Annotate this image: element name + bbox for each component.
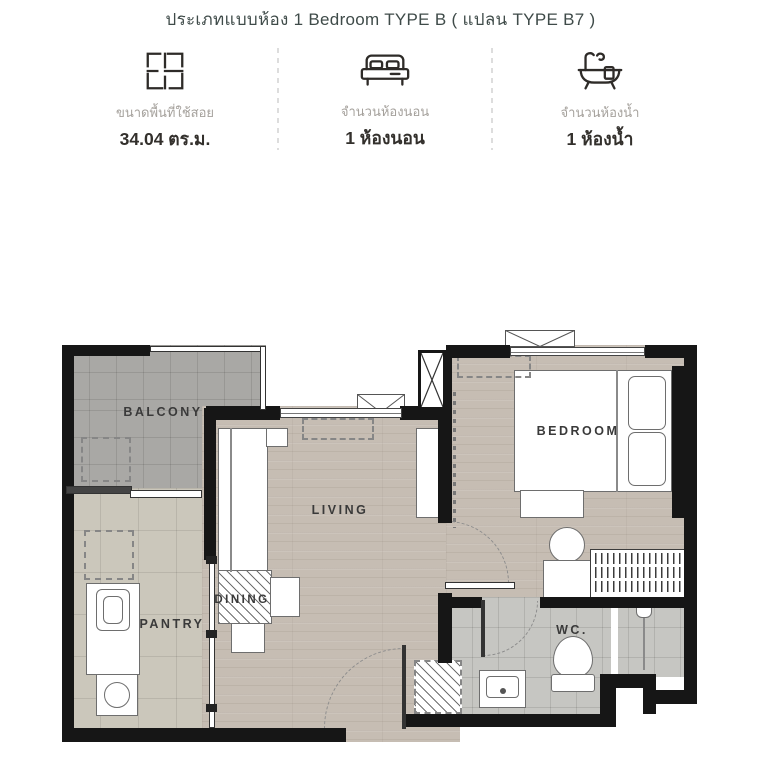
wall-segment [204, 408, 216, 560]
balcony-sliding-door [66, 486, 132, 494]
sofa [218, 428, 268, 572]
wc-door-leaf [481, 600, 485, 657]
wc-door-swing [483, 601, 538, 656]
room-label-wc: WC. [556, 623, 588, 637]
closet-outline [457, 355, 531, 378]
wc-sink-faucet [500, 688, 506, 694]
wardrobe-clothes-row [595, 553, 681, 564]
wardrobe [590, 549, 686, 598]
pantry-sink-basin [103, 596, 123, 624]
wall-segment [650, 690, 697, 704]
shaft-box [418, 350, 446, 410]
wall-segment [62, 345, 150, 356]
curtain-outline [302, 418, 374, 440]
door-swing [447, 521, 509, 583]
tv-console [416, 428, 440, 518]
dining-chair [231, 623, 265, 653]
sliding-door [445, 582, 515, 589]
wardrobe-clothes-row [595, 581, 681, 592]
wall-segment [62, 345, 74, 742]
pantry-sliding-partition [209, 560, 215, 728]
wall-segment [446, 597, 482, 608]
window-flap-icon [505, 330, 575, 347]
fridge-outline [84, 530, 134, 580]
sofa-cushion-line [230, 428, 232, 572]
wall-segment [62, 728, 346, 742]
partition-node [206, 704, 217, 712]
shower-hose [643, 618, 645, 670]
balcony-railing [260, 346, 266, 410]
bedroom-window [510, 347, 645, 356]
structural-slab [672, 366, 697, 518]
balcony-sliding-door [130, 490, 202, 498]
ac-unit-outline [81, 437, 131, 482]
shoe-cabinet [414, 660, 462, 714]
floorplan: BALCONY LIVING DINING PANTRY BEDROOM WC. [0, 0, 761, 767]
curtain-dashes [453, 392, 456, 528]
partition-node [206, 556, 217, 564]
toilet-bowl [553, 636, 593, 678]
dining-chair [270, 577, 300, 617]
room-label-pantry: PANTRY [140, 617, 205, 631]
room-label-balcony: BALCONY [123, 405, 202, 419]
entrance-door-swing [324, 648, 404, 728]
living-window [280, 408, 402, 418]
room-label-bedroom: BEDROOM [537, 424, 620, 438]
sofa-chaise [266, 428, 288, 447]
room-label-dining: DINING [214, 594, 269, 606]
wardrobe-clothes-row [595, 567, 681, 578]
shower-glass [611, 608, 618, 674]
washing-machine-drum [104, 682, 130, 708]
pillow [628, 432, 666, 486]
partition-node [206, 630, 217, 638]
room-label-living: LIVING [312, 503, 369, 517]
wall-segment [540, 597, 697, 608]
bed-bench [520, 490, 584, 518]
stool [549, 527, 585, 563]
wall-segment [206, 406, 280, 420]
wc-sink-basin [486, 676, 519, 698]
balcony-railing [150, 346, 266, 352]
entrance-door-leaf [402, 645, 406, 729]
toilet-tank [551, 674, 595, 692]
vanity-desk [543, 560, 593, 598]
wall-segment [404, 714, 616, 727]
pillow [628, 376, 666, 430]
wall-segment [446, 345, 510, 358]
page: ประเภทแบบห้อง 1 Bedroom TYPE B ( แปลน TY… [0, 0, 761, 767]
